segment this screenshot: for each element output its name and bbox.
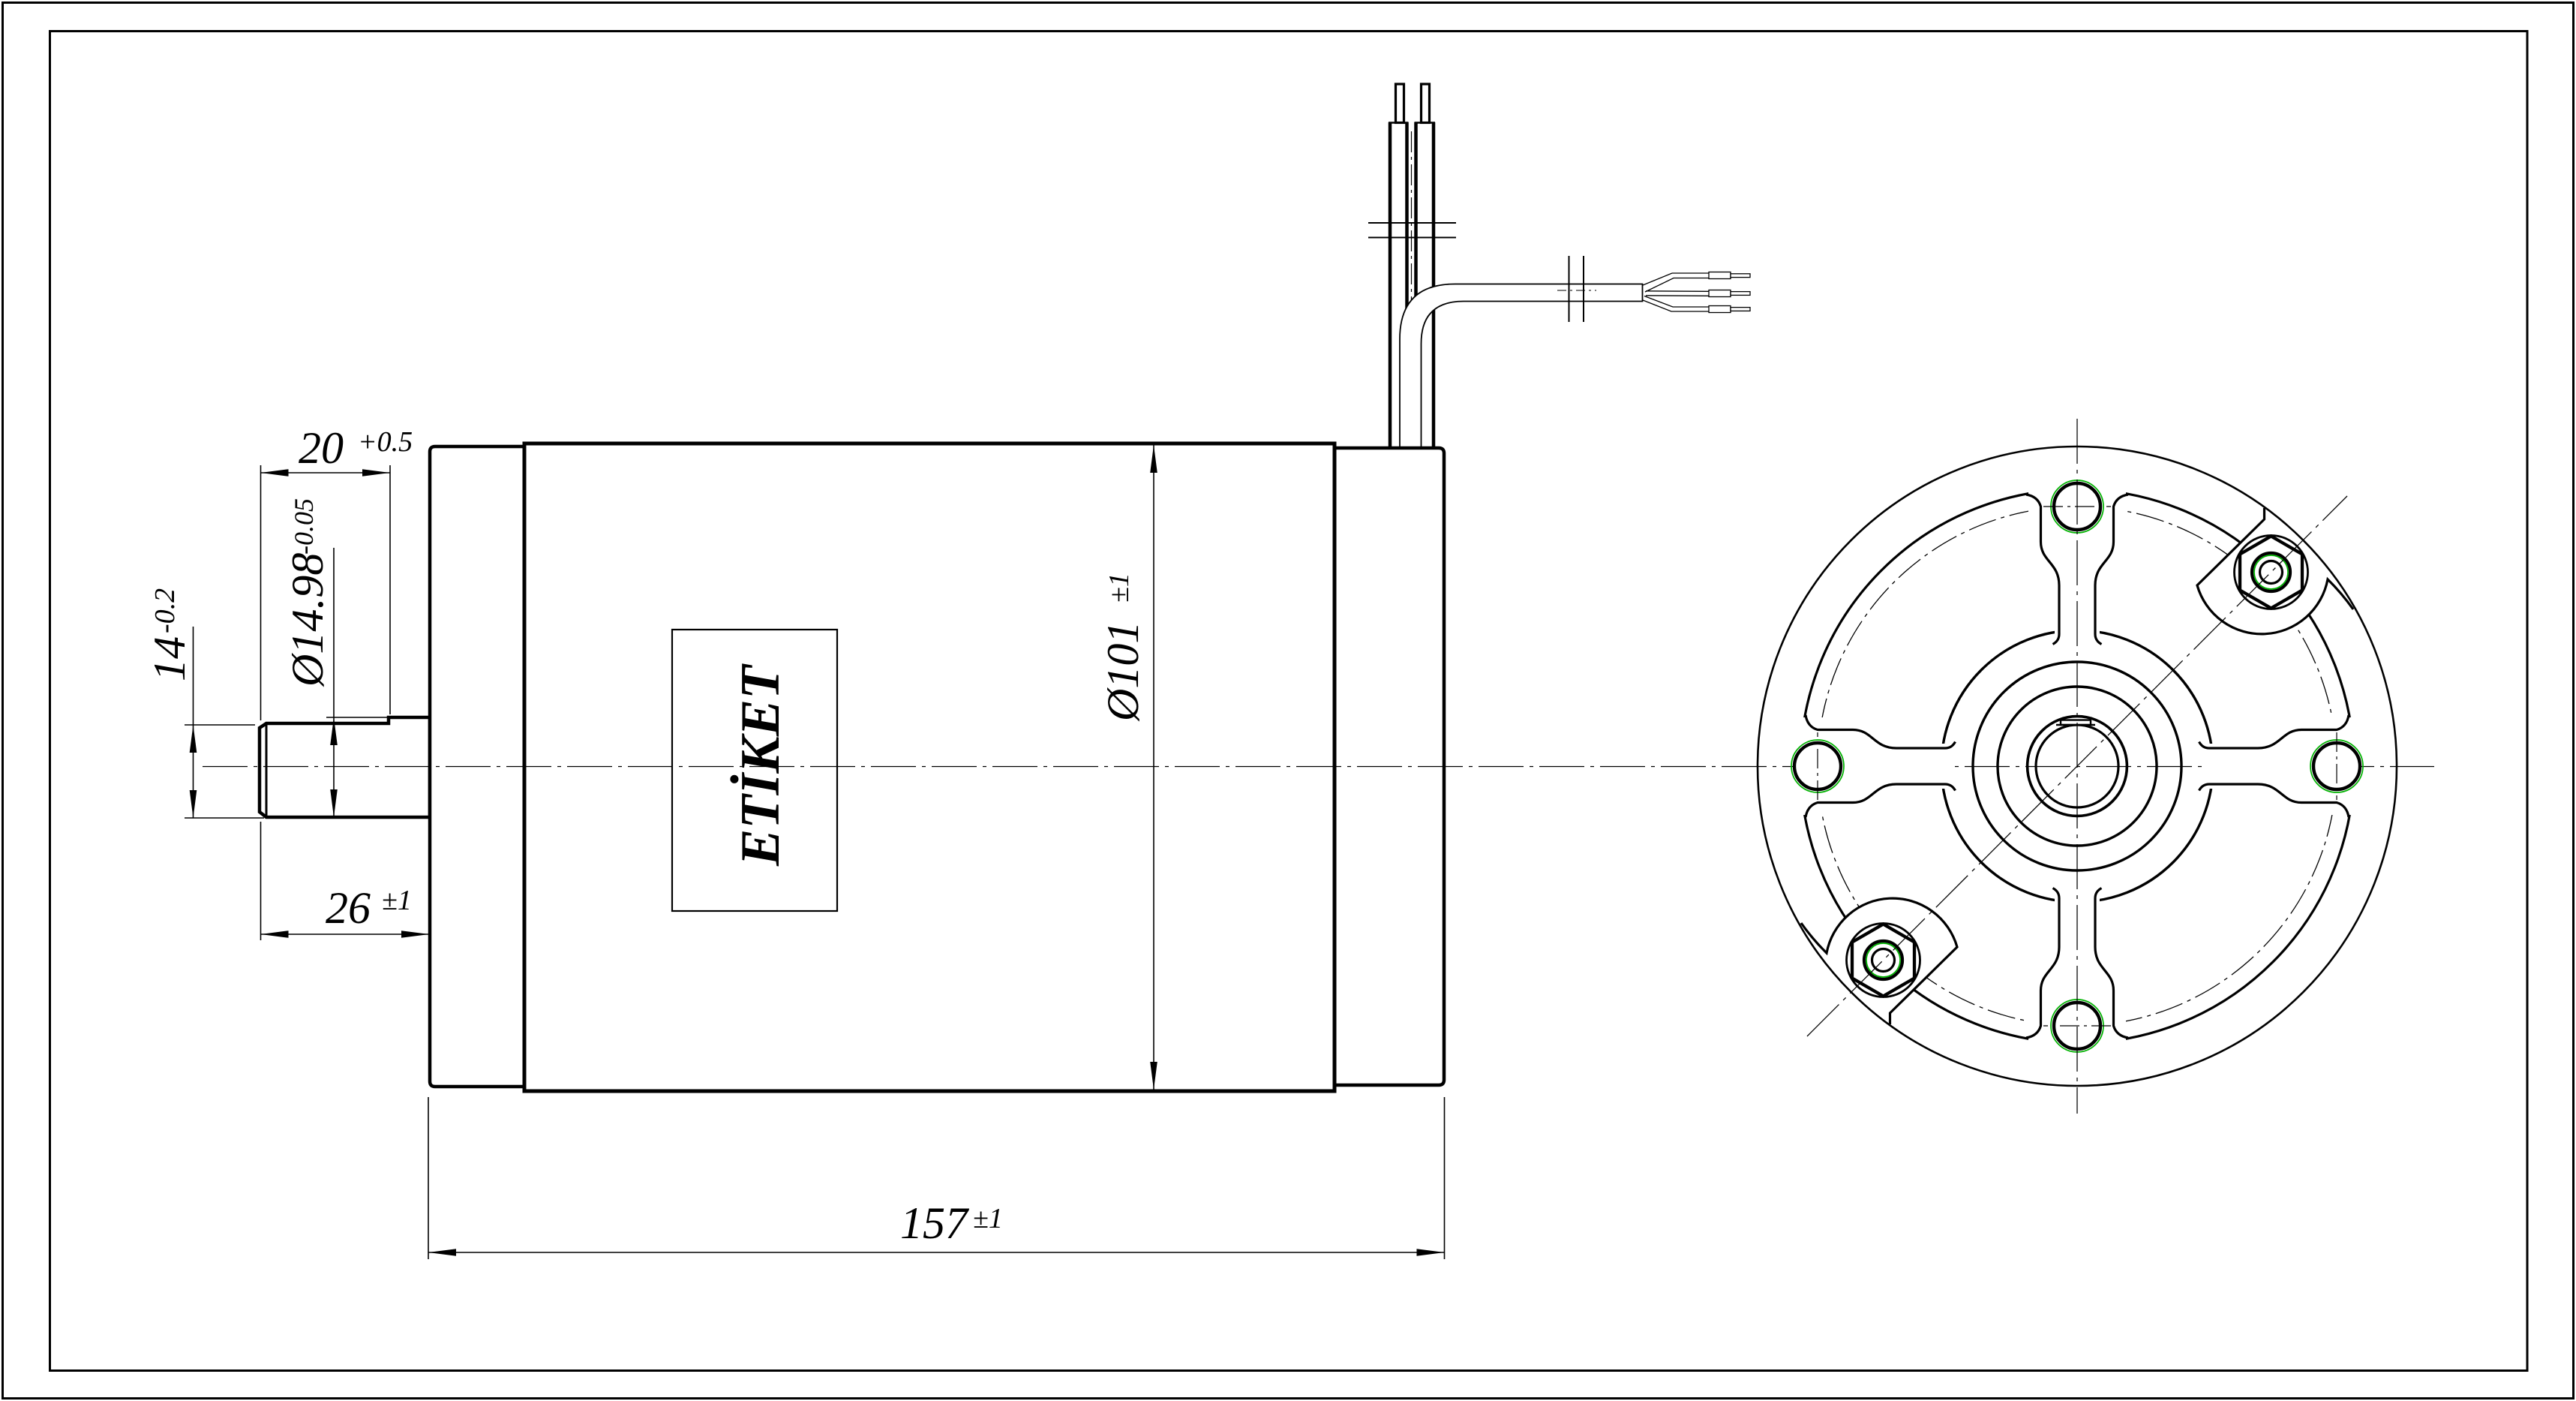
svg-text:+0.5: +0.5 [358,426,413,458]
svg-text:20: 20 [299,423,344,473]
svg-text:±1: ±1 [382,885,412,916]
svg-text:±1: ±1 [973,1203,1003,1234]
svg-text:-0.05: -0.05 [289,498,319,555]
svg-text:ETİKET: ETİKET [730,663,791,867]
svg-text:157: 157 [900,1198,970,1248]
svg-text:26: 26 [326,883,371,933]
svg-text:-0.2: -0.2 [149,588,181,633]
svg-text:Ø14.98: Ø14.98 [283,553,332,687]
svg-text:14: 14 [145,636,194,681]
svg-text:±1: ±1 [1103,573,1135,603]
svg-text:Ø101: Ø101 [1098,621,1148,722]
